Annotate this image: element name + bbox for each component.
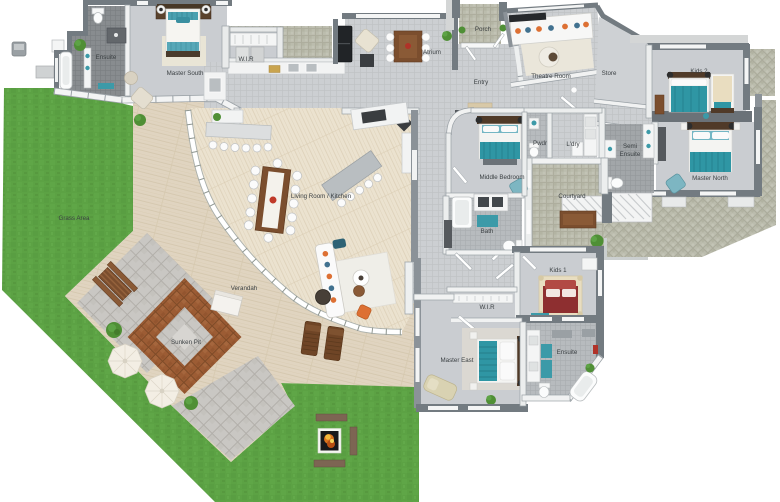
svg-text:Master South: Master South [167,70,204,77]
svg-text:W.I.R: W.I.R [238,56,254,63]
svg-text:Kids 1: Kids 1 [549,267,567,274]
svg-text:Kids 2: Kids 2 [690,68,708,75]
svg-text:Ensuite: Ensuite [620,151,641,158]
svg-text:Porch: Porch [475,26,492,33]
svg-text:Store: Store [602,70,617,77]
svg-text:Living Room / Kitchen: Living Room / Kitchen [291,193,352,200]
svg-text:Sunken Pit: Sunken Pit [171,339,201,346]
svg-text:Grass Area: Grass Area [59,215,91,222]
svg-text:Theatre Room: Theatre Room [531,73,571,80]
svg-text:Verandah: Verandah [231,285,258,292]
svg-text:Semi: Semi [623,143,637,150]
svg-text:Courtyard: Courtyard [558,193,586,200]
svg-text:Ensuite: Ensuite [557,349,578,356]
svg-text:W.I.R: W.I.R [479,304,495,311]
svg-text:Master East: Master East [440,357,473,364]
svg-text:Middle Bedroom: Middle Bedroom [479,174,524,181]
svg-text:Atrium: Atrium [423,49,441,56]
svg-text:Bath: Bath [481,228,494,235]
svg-text:L'dry: L'dry [566,141,580,148]
svg-text:Ensuite: Ensuite [96,54,117,61]
svg-text:Master North: Master North [692,175,728,182]
svg-text:Entry: Entry [474,79,489,86]
svg-text:Pwdr: Pwdr [533,140,547,147]
